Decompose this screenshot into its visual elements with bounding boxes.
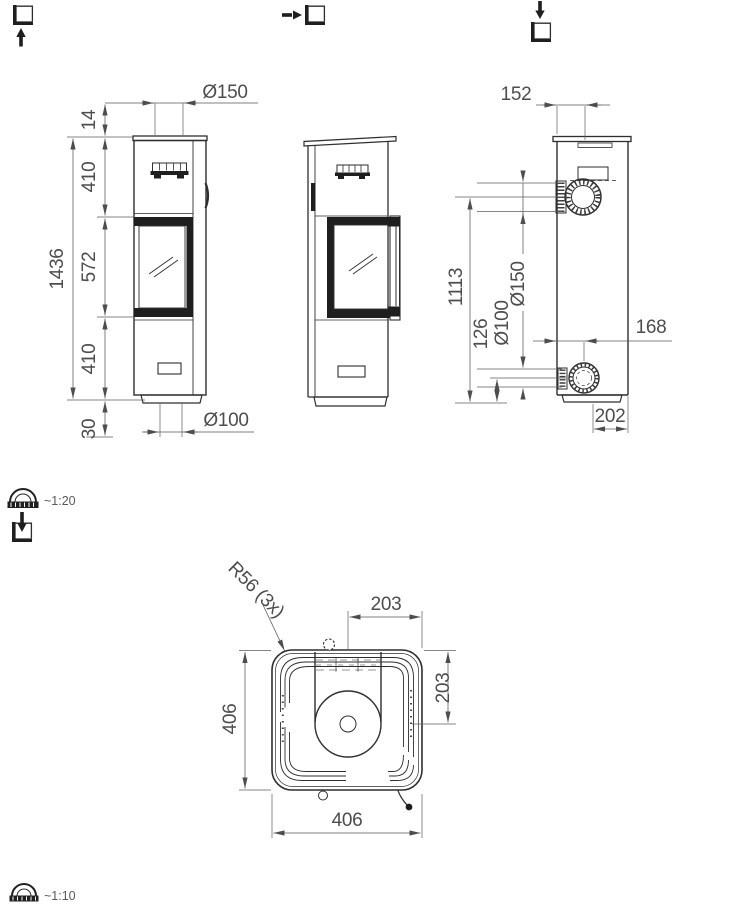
door-hinge — [311, 183, 316, 211]
side-view-symbol — [282, 5, 325, 25]
scale-label-elevations: ~1:20 — [44, 494, 76, 508]
control-knob-bottom — [319, 791, 328, 800]
dim-flue-diameter: Ø150 — [202, 82, 247, 103]
door-glass — [334, 225, 388, 309]
base-plinth — [141, 395, 202, 403]
arrow-up-icon — [16, 28, 25, 37]
dim-flue-offset: 152 — [501, 84, 532, 105]
dim-upper-section: 410 — [79, 162, 100, 193]
handle-bracket-bottom — [388, 307, 400, 317]
dim-body-depth: 406 — [220, 704, 241, 735]
dim-collar-height: 14 — [79, 109, 100, 130]
dim-base-clearance: 30 — [79, 419, 100, 440]
dim-body-width: 406 — [332, 810, 363, 831]
flue-opening-circle — [315, 691, 381, 757]
stove-dimension-drawing: Ø150 14 1436 410 572 410 30 Ø100 — [0, 0, 731, 904]
dim-inlet-offset: 168 — [636, 317, 667, 338]
dim-flue-offset-y: 203 — [433, 673, 454, 704]
dim-flue-height: 1113 — [446, 268, 467, 306]
dim-overall-height: 1436 — [47, 248, 68, 289]
air-control-grate — [151, 163, 189, 179]
dim-flue-diameter-side: Ø150 — [508, 261, 529, 306]
front-elevation-view: Ø150 14 1436 410 572 410 30 Ø100 — [47, 82, 258, 439]
dim-inlet-diameter: Ø100 — [203, 410, 248, 431]
air-control-grate — [335, 165, 370, 179]
door-glass — [139, 226, 185, 308]
base-plinth — [314, 397, 387, 406]
stove-door-front — [134, 217, 193, 317]
door-handle-plan — [398, 790, 408, 806]
dim-corner-radius: R56 (3x) — [224, 558, 289, 623]
convection-channels — [281, 658, 414, 781]
front-view-symbol — [13, 5, 33, 47]
plan-view-symbol — [12, 512, 32, 542]
door-handle-knob — [406, 804, 413, 811]
base-plinth — [562, 395, 622, 402]
flue-center-hole — [340, 716, 356, 732]
dim-lower-section: 410 — [79, 344, 100, 375]
technical-drawing-sheet: Ø150 14 1436 410 572 410 30 Ø100 — [0, 0, 731, 904]
scale-label-plan: ~1:10 — [44, 889, 76, 903]
arrow-down-icon — [535, 11, 544, 20]
dim-inlet-height: 126 — [471, 319, 492, 350]
top-view-symbol — [531, 1, 551, 42]
ash-drawer-handle — [158, 363, 181, 374]
ash-drawer-handle — [338, 366, 365, 377]
flue-collar-hidden — [578, 167, 608, 180]
scale-note-plan: ~1:10 — [10, 884, 76, 903]
side-elevation-view: 152 Ø150 Ø100 1113 126 168 202 — [446, 84, 672, 433]
arrow-right-icon — [293, 11, 302, 20]
stove-door-side — [327, 216, 400, 320]
dim-middle-section: 572 — [79, 252, 100, 283]
ruler-protractor-icon — [12, 884, 36, 896]
arrow-into-square-icon — [18, 524, 27, 533]
dim-inlet-diameter-side: Ø100 — [492, 300, 513, 345]
control-knob-top — [324, 639, 335, 650]
plan-view: R56 (3x) 203 203 406 406 — [220, 558, 456, 838]
top-flue-opening — [578, 143, 612, 148]
ruler-protractor-icon — [10, 489, 36, 502]
dim-base-depth: 202 — [595, 406, 626, 427]
handle-bracket-top — [388, 217, 400, 227]
angled-elevation-view — [304, 137, 400, 407]
scale-note-elevations: ~1:20 — [8, 489, 76, 508]
dim-flue-offset-x: 203 — [371, 594, 402, 615]
